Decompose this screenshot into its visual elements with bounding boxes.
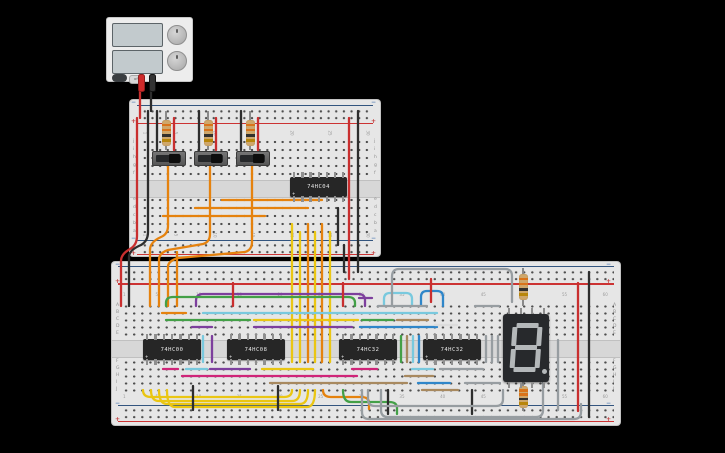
ic-pin xyxy=(384,334,386,340)
current-display xyxy=(112,50,163,74)
row-label: G xyxy=(613,367,617,372)
ic-pin xyxy=(238,359,240,365)
voltage-display xyxy=(112,23,163,47)
ic-pin xyxy=(163,334,165,340)
resistor-band xyxy=(246,124,255,127)
row-label: E xyxy=(613,332,616,337)
ic-pin xyxy=(255,359,257,365)
ic-pin xyxy=(255,334,257,340)
row-label: b xyxy=(374,222,377,227)
row-label: F xyxy=(116,360,119,365)
col-number: 40 xyxy=(440,293,445,297)
row-label: H xyxy=(613,374,616,379)
ic-pin xyxy=(309,196,311,202)
ic-pin xyxy=(359,359,361,365)
col-number: 40 xyxy=(440,395,445,399)
plus-sign: + xyxy=(115,279,120,285)
knob-indicator xyxy=(176,29,178,34)
ic-pin xyxy=(434,334,436,340)
col-number: 25 xyxy=(318,395,323,399)
col-number: 60 xyxy=(603,293,608,297)
negative-probe[interactable] xyxy=(149,74,156,92)
ic-label: 74HC32 xyxy=(441,347,464,353)
ic-pin xyxy=(188,334,190,340)
ic-pin xyxy=(426,359,428,365)
row-label: D xyxy=(613,325,616,330)
rail-holes[interactable] xyxy=(122,407,614,421)
ic-74hc32[interactable]: 74HC32+ xyxy=(423,339,481,360)
ic-pin xyxy=(196,359,198,365)
row-label: j xyxy=(374,140,375,145)
col-number: 45 xyxy=(481,395,486,399)
resistor-5[interactable] xyxy=(519,386,528,408)
ic-pin xyxy=(392,359,394,365)
positive-probe[interactable] xyxy=(138,74,145,92)
seven-segment-display[interactable] xyxy=(503,314,549,382)
resistor-band xyxy=(162,134,171,137)
current-knob[interactable] xyxy=(167,51,187,71)
minus-sign: − xyxy=(606,262,611,268)
ic-pin xyxy=(443,334,445,340)
resistor-band xyxy=(519,393,528,396)
ic-pin xyxy=(263,359,265,365)
ic-pin xyxy=(342,172,344,178)
row-label: F xyxy=(613,360,616,365)
minus-sign: − xyxy=(115,401,120,407)
ic-pin xyxy=(443,359,445,365)
row-label: c xyxy=(133,214,135,219)
ic-pin xyxy=(459,334,461,340)
ic-pin xyxy=(476,359,478,365)
minus-sign: − xyxy=(371,236,376,242)
ic-pin xyxy=(188,359,190,365)
resistor-band xyxy=(519,398,528,401)
col-number: 55 xyxy=(562,395,567,399)
positive-rail-line xyxy=(137,123,373,124)
ic-pin xyxy=(272,334,274,340)
ic-pin xyxy=(326,196,328,202)
row-label: f xyxy=(374,172,376,177)
row-label: g xyxy=(374,164,377,169)
col-number: 1 xyxy=(142,234,146,237)
ic-pin xyxy=(434,359,436,365)
col-number: 30 xyxy=(359,395,364,399)
resistor-band xyxy=(246,139,255,142)
row-label: j xyxy=(133,140,134,145)
row-label: a xyxy=(374,230,377,235)
col-number: 1 xyxy=(123,293,126,297)
row-label: d xyxy=(133,206,136,211)
ic-pin xyxy=(350,334,352,340)
row-label: A xyxy=(116,304,119,309)
resistor-band xyxy=(246,129,255,132)
col-number: 15 xyxy=(237,395,242,399)
ic-pin xyxy=(171,359,173,365)
ic-pin xyxy=(367,359,369,365)
positive-rail-line xyxy=(137,254,373,255)
ic-pin xyxy=(459,359,461,365)
ic-pin xyxy=(318,172,320,178)
knob-indicator xyxy=(176,55,178,60)
slide-switch-2[interactable] xyxy=(194,151,228,166)
ic-pin xyxy=(154,359,156,365)
col-number: 35 xyxy=(399,293,404,297)
display-pin xyxy=(520,382,522,388)
resistor-band xyxy=(204,139,213,142)
ic-pin xyxy=(334,196,336,202)
col-number: 35 xyxy=(399,395,404,399)
ic-74hc08[interactable]: 74HC08+ xyxy=(227,339,285,360)
ic-pin xyxy=(326,172,328,178)
segment xyxy=(513,367,535,372)
ic-label: 74HC04 xyxy=(307,184,330,190)
minus-sign: − xyxy=(606,401,611,407)
ic-pin xyxy=(301,196,303,202)
ic-pin xyxy=(301,172,303,178)
resistor-band xyxy=(519,278,528,281)
ic-pin xyxy=(318,196,320,202)
resistor-band xyxy=(162,139,171,142)
col-number: 25 xyxy=(318,293,323,297)
col-number: 30 xyxy=(359,293,364,297)
segment xyxy=(510,349,516,368)
decimal-point xyxy=(542,369,547,374)
ic-pin xyxy=(163,359,165,365)
display-pin xyxy=(543,382,545,388)
ic-pin xyxy=(468,334,470,340)
ic-pin xyxy=(247,359,249,365)
ic-pin xyxy=(426,334,428,340)
resistor-4[interactable] xyxy=(519,274,528,300)
voltage-knob[interactable] xyxy=(167,25,187,45)
ic-pin xyxy=(359,334,361,340)
ic-pin xyxy=(154,334,156,340)
ic-pin xyxy=(293,196,295,202)
resistor-band xyxy=(162,129,171,132)
col-number: 5 xyxy=(156,293,159,297)
row-label: J xyxy=(116,388,117,393)
segment xyxy=(535,349,541,368)
ic-label: 74HC32 xyxy=(357,347,380,353)
ic-pin xyxy=(451,334,453,340)
switch-knob[interactable] xyxy=(211,154,222,163)
col-number: 15 xyxy=(251,232,255,237)
col-number: 25 xyxy=(327,232,331,237)
ic-pin xyxy=(196,334,198,340)
ic-pin xyxy=(342,196,344,202)
slide-switch-3[interactable] xyxy=(236,151,270,166)
ic-pin xyxy=(171,334,173,340)
plus-sign: + xyxy=(371,251,376,257)
ic-pin xyxy=(375,334,377,340)
ic-pin xyxy=(367,334,369,340)
row-label: I xyxy=(613,381,614,386)
rail-holes[interactable] xyxy=(141,242,369,256)
ic-pin xyxy=(272,359,274,365)
rail-holes[interactable] xyxy=(141,108,369,122)
power-toggle[interactable] xyxy=(112,74,127,82)
resistor-1[interactable] xyxy=(162,120,171,146)
segment xyxy=(511,327,517,346)
ic-pin xyxy=(179,359,181,365)
switch-knob[interactable] xyxy=(169,154,180,163)
col-number: 55 xyxy=(562,293,567,297)
row-label: B xyxy=(116,311,119,316)
resistor-band xyxy=(519,389,528,392)
slide-switch-1[interactable] xyxy=(152,151,186,166)
ic-pin xyxy=(392,334,394,340)
segment xyxy=(516,323,538,328)
row-label: a xyxy=(133,230,136,235)
segment xyxy=(515,345,537,350)
resistor-band xyxy=(519,293,528,296)
resistor-band xyxy=(246,134,255,137)
ic-pin xyxy=(350,359,352,365)
col-number: 20 xyxy=(289,130,293,135)
plus-sign: + xyxy=(371,119,376,125)
col-number: 10 xyxy=(212,232,216,237)
row-label: f xyxy=(133,172,135,177)
col-number: 25 xyxy=(327,130,331,135)
minus-sign: − xyxy=(371,100,376,106)
positive-rail-line xyxy=(118,283,614,284)
ic-pin xyxy=(146,359,148,365)
minus-sign: − xyxy=(131,236,136,242)
resistor-band xyxy=(204,134,213,137)
ic-pin xyxy=(309,172,311,178)
display-pin xyxy=(543,308,545,314)
col-number: 5 xyxy=(173,234,177,237)
ic-74hc04[interactable]: 74HC04+ xyxy=(290,177,347,197)
row-label: e xyxy=(374,198,377,203)
ic-pin xyxy=(293,172,295,178)
plus-sign: + xyxy=(115,417,120,423)
row-label: i xyxy=(374,148,375,153)
display-pin xyxy=(520,308,522,314)
row-label: E xyxy=(116,332,119,337)
col-number: 60 xyxy=(603,395,608,399)
negative-rail-line xyxy=(137,105,373,106)
plus-sign: + xyxy=(131,119,136,125)
plus-sign: + xyxy=(131,251,136,257)
negative-rail-line xyxy=(118,266,614,267)
row-label: H xyxy=(116,374,119,379)
row-label: G xyxy=(116,367,120,372)
col-number: 20 xyxy=(289,232,293,237)
plus-sign: + xyxy=(606,279,611,285)
ic-label: 74HC08 xyxy=(245,347,268,353)
row-label: d xyxy=(374,206,377,211)
col-number: 10 xyxy=(212,130,216,135)
ic-pin xyxy=(280,359,282,365)
resistor-band xyxy=(519,402,528,405)
row-label: c xyxy=(374,214,376,219)
ic-pin xyxy=(384,359,386,365)
display-pin xyxy=(531,308,533,314)
positive-rail-line xyxy=(118,421,614,422)
resistor-band xyxy=(204,124,213,127)
ic-pin xyxy=(334,172,336,178)
row-label: C xyxy=(613,318,616,323)
minus-sign: − xyxy=(131,100,136,106)
switch-knob[interactable] xyxy=(253,154,264,163)
col-number: 45 xyxy=(481,293,486,297)
col-number: 20 xyxy=(277,293,282,297)
row-label: i xyxy=(133,148,134,153)
resistor-band xyxy=(162,124,171,127)
row-label: h xyxy=(374,156,377,161)
ic-pin xyxy=(451,359,453,365)
ic-pin xyxy=(230,334,232,340)
col-number: 1 xyxy=(123,395,126,399)
col-number: 5 xyxy=(156,395,159,399)
ic-pin xyxy=(342,334,344,340)
terminal-holes[interactable] xyxy=(141,196,369,236)
power-supply[interactable]: off xyxy=(106,17,193,82)
row-label: e xyxy=(133,198,136,203)
ic-pin xyxy=(263,334,265,340)
ic-74hc32[interactable]: 74HC32+ xyxy=(339,339,397,360)
col-number: 20 xyxy=(277,395,282,399)
ic-pin xyxy=(179,334,181,340)
row-label: D xyxy=(116,325,119,330)
row-label: b xyxy=(133,222,136,227)
ic-pin xyxy=(468,359,470,365)
rail-holes[interactable] xyxy=(122,269,614,283)
col-number: 30 xyxy=(366,130,370,135)
display-pin xyxy=(531,382,533,388)
resistor-band xyxy=(519,283,528,286)
row-label: g xyxy=(133,164,136,169)
display-pin xyxy=(508,382,510,388)
ic-pin xyxy=(238,334,240,340)
col-number: 1 xyxy=(142,132,146,135)
ic-pin xyxy=(476,334,478,340)
minus-sign: − xyxy=(115,262,120,268)
col-number: 10 xyxy=(196,395,201,399)
ic-pin xyxy=(146,334,148,340)
row-label: C xyxy=(116,318,119,323)
ic-74hc00[interactable]: 74HC00+ xyxy=(143,339,201,360)
circuit-workspace: jjiihhggffeeddccbbaa11551010151520202525… xyxy=(0,0,725,453)
ic-pin xyxy=(230,359,232,365)
row-label: J xyxy=(613,388,614,393)
resistor-band xyxy=(204,129,213,132)
ic-pin xyxy=(247,334,249,340)
row-label: I xyxy=(116,381,117,386)
ic-pin xyxy=(280,334,282,340)
row-label: h xyxy=(133,156,136,161)
ic-label: 74HC00 xyxy=(161,347,184,353)
resistor-2[interactable] xyxy=(204,120,213,146)
ic-pin xyxy=(375,359,377,365)
resistor-band xyxy=(519,288,528,291)
col-number: 30 xyxy=(366,232,370,237)
ic-pin xyxy=(342,359,344,365)
col-number: 15 xyxy=(237,293,242,297)
col-number: 5 xyxy=(173,132,177,135)
col-number: 10 xyxy=(196,293,201,297)
plus-sign: + xyxy=(606,417,611,423)
row-label: A xyxy=(613,304,616,309)
resistor-3[interactable] xyxy=(246,120,255,146)
display-pin xyxy=(508,308,510,314)
row-label: B xyxy=(613,311,616,316)
segment xyxy=(536,327,542,346)
